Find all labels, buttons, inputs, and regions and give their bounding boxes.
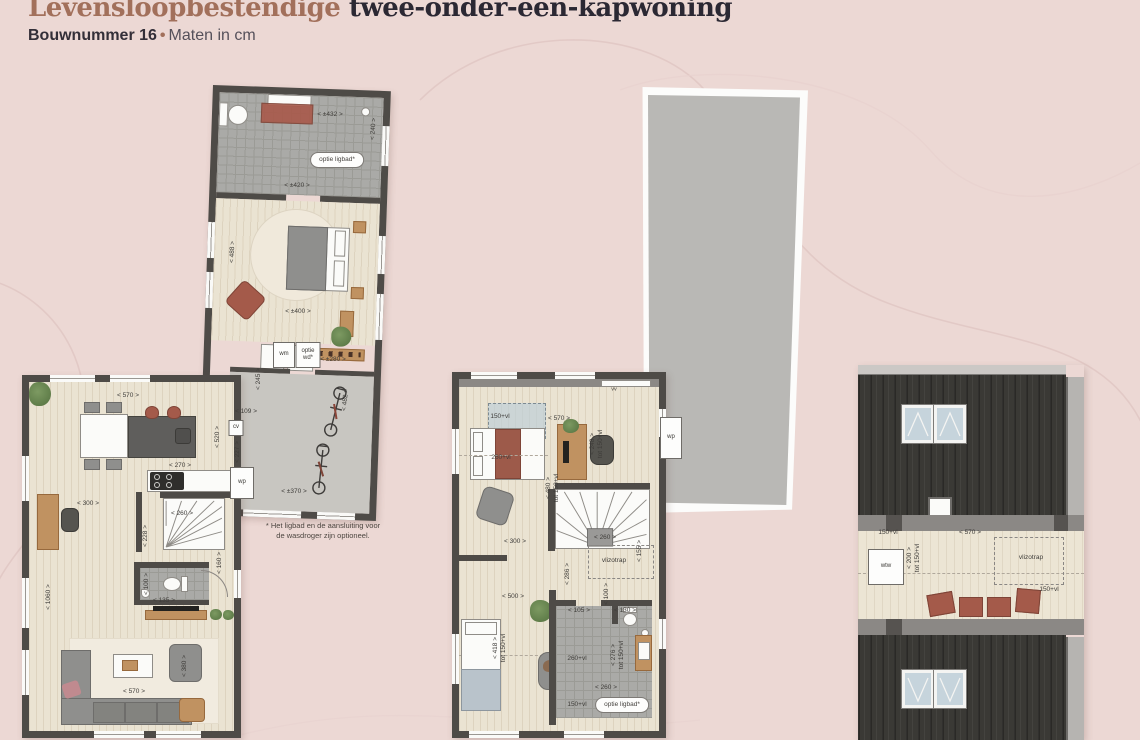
tv-screen xyxy=(153,606,199,611)
page-subtitle: Bouwnummer 16•Maten in cm xyxy=(28,27,732,45)
window xyxy=(381,126,389,166)
floorplan-first-floor xyxy=(452,372,666,738)
bath-mat xyxy=(261,103,314,125)
page-title: Levensloopbestendige twee-onder-een-kapw… xyxy=(28,0,732,23)
hall-wall xyxy=(136,492,142,552)
toilet-wall xyxy=(134,600,209,605)
door-swing xyxy=(201,570,228,597)
dining-chair xyxy=(106,402,122,413)
armchair xyxy=(169,644,202,682)
desk-chair xyxy=(590,435,614,465)
floorplan-sheet: Levensloopbestendige twee-onder-een-kapw… xyxy=(0,0,1140,740)
plant xyxy=(223,610,234,620)
storage-box xyxy=(1015,588,1041,614)
roof-side-strip xyxy=(1066,377,1084,515)
wall-block xyxy=(1054,515,1068,531)
side-table xyxy=(179,698,205,722)
monitor xyxy=(563,441,569,463)
wc-partition xyxy=(612,606,618,624)
armchair xyxy=(475,485,516,527)
nightstand xyxy=(351,287,364,299)
roof-plane-front xyxy=(858,375,1066,515)
window xyxy=(378,236,386,274)
bed-blanket xyxy=(286,226,328,291)
bar-stool xyxy=(167,406,181,419)
entry-door xyxy=(234,570,241,598)
skylight xyxy=(934,670,966,708)
wall-block xyxy=(886,515,902,531)
window xyxy=(555,372,595,379)
cooktop-burner xyxy=(154,482,160,488)
skylight xyxy=(902,670,934,708)
cooktop-burner xyxy=(166,482,172,488)
skylight xyxy=(902,405,934,443)
window xyxy=(50,375,95,382)
window xyxy=(659,619,666,649)
window xyxy=(156,731,201,738)
window xyxy=(471,372,517,379)
window xyxy=(22,456,29,501)
window xyxy=(22,650,29,695)
storage-box xyxy=(959,597,983,617)
stairs-wall xyxy=(548,489,555,551)
bed-blanket xyxy=(461,669,501,711)
toilet-bowl xyxy=(163,577,181,591)
desk-chair xyxy=(61,508,79,532)
cooktop-burner xyxy=(154,474,160,480)
dining-table xyxy=(80,414,128,458)
wall-block xyxy=(886,619,902,635)
window xyxy=(452,429,459,474)
storage-box xyxy=(926,591,955,617)
bathroom-wall xyxy=(549,590,556,725)
cooktop-burner xyxy=(166,474,172,480)
sink xyxy=(638,642,650,660)
staircase xyxy=(163,498,225,550)
toilet-tank xyxy=(181,576,188,592)
header: Levensloopbestendige twee-onder-een-kapw… xyxy=(28,0,732,45)
washer-box xyxy=(260,344,285,371)
window xyxy=(94,731,144,738)
storage-box xyxy=(987,597,1011,617)
storage-door xyxy=(317,512,355,520)
title-rest: twee-onder-een-kapwoning xyxy=(340,0,732,23)
loft-ladder-outline xyxy=(588,545,654,579)
bed-pillow xyxy=(473,456,483,476)
toilet-bowl xyxy=(623,613,637,626)
subtitle-separator: • xyxy=(157,27,169,44)
dining-chair xyxy=(84,459,100,470)
ridge-edge xyxy=(858,365,1066,375)
window xyxy=(469,731,519,738)
title-accent: Levensloopbestendige xyxy=(28,0,340,23)
desk xyxy=(37,494,59,550)
bed-pillow xyxy=(473,432,483,452)
window xyxy=(110,375,150,382)
floorplan-ground-front xyxy=(22,375,241,738)
dining-chair xyxy=(106,459,122,470)
window xyxy=(207,222,215,258)
window xyxy=(452,634,459,684)
roof-side-strip xyxy=(1066,637,1084,740)
staircase xyxy=(555,489,650,549)
plant xyxy=(210,609,222,620)
loft-ladder-outline xyxy=(994,537,1064,585)
bicycles xyxy=(301,383,357,507)
skylight xyxy=(934,405,966,443)
floorplan-attic xyxy=(858,365,1084,740)
plant xyxy=(29,382,51,406)
units-note: Maten in cm xyxy=(169,27,256,44)
dining-chair xyxy=(84,402,100,413)
island-sink xyxy=(175,428,191,444)
sofa-cushion xyxy=(125,702,157,723)
bar-stool xyxy=(145,406,159,419)
corner-sink xyxy=(141,589,150,598)
headroom-line xyxy=(459,455,548,456)
dryer-box xyxy=(287,345,314,372)
window xyxy=(564,731,604,738)
sofa-cushion xyxy=(93,702,125,723)
toilet-tank xyxy=(219,102,229,126)
bed-pillow xyxy=(465,622,497,635)
bed-blanket xyxy=(495,429,521,479)
radiator xyxy=(601,380,651,387)
plant xyxy=(563,419,579,433)
bedroom-divider xyxy=(459,555,507,561)
build-number: Bouwnummer 16 xyxy=(28,27,157,44)
window xyxy=(205,272,213,308)
roof-panel-surface xyxy=(648,95,800,505)
window xyxy=(22,578,29,628)
bed-pillow xyxy=(334,230,346,256)
table-tray xyxy=(122,660,138,671)
nightstand xyxy=(353,221,366,233)
tv-cabinet xyxy=(145,610,207,620)
bed-pillow xyxy=(333,260,345,286)
window xyxy=(659,409,666,437)
